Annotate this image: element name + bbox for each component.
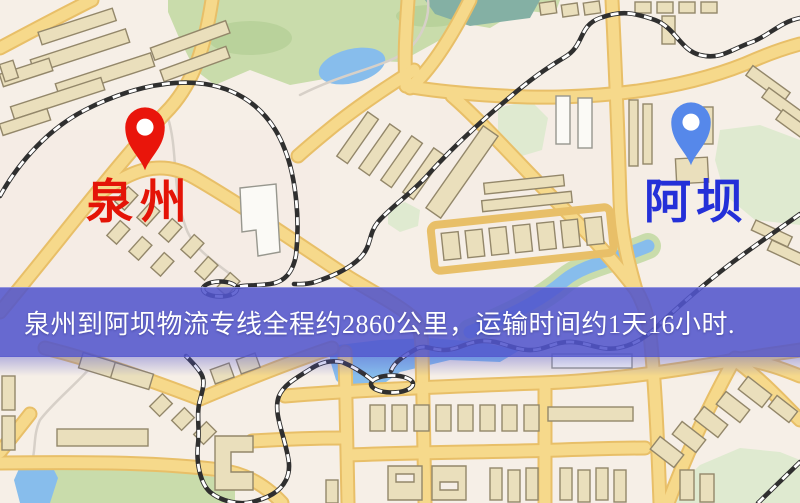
route-info-text: 泉州到阿坝物流专线全程约2860公里，运输时间约1天16小时. bbox=[0, 304, 735, 341]
route-info-banner: 泉州到阿坝物流专线全程约2860公里，运输时间约1天16小时. bbox=[0, 287, 800, 357]
map-image bbox=[0, 0, 800, 503]
map-screenshot: 泉州 阿坝 泉州到阿坝物流专线全程约2860公里，运输时间约1天16小时. bbox=[0, 0, 800, 503]
destination-pin-icon bbox=[664, 97, 718, 167]
origin-label: 泉州 bbox=[86, 180, 194, 227]
destination-label: 阿坝 bbox=[644, 180, 748, 227]
origin-pin-icon bbox=[118, 102, 172, 172]
